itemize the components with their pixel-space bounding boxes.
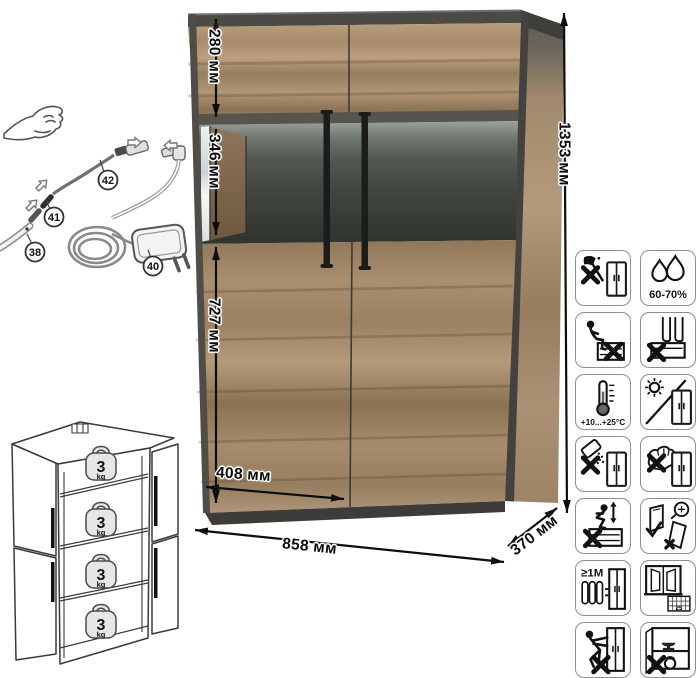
dim-lower-section-height: 727 мм bbox=[206, 298, 222, 353]
cabinet-glass-section bbox=[196, 121, 518, 244]
kettlebell-icon bbox=[665, 657, 675, 669]
part-badge-41: 41 bbox=[48, 212, 60, 224]
icon-no-sharp-tools bbox=[575, 250, 631, 306]
icon-temperature-range: +10...+25°C bbox=[575, 374, 631, 430]
care-icons-grid: 60-70% +10...+25°C bbox=[575, 250, 696, 678]
calendar-label: 25 bbox=[675, 605, 682, 612]
svg-text:kg: kg bbox=[97, 528, 106, 537]
icon-anchor-to-wall bbox=[640, 498, 696, 554]
part-badge-42: 42 bbox=[102, 175, 114, 187]
svg-text:kg: kg bbox=[97, 630, 106, 639]
icon-no-heavy-objects bbox=[640, 622, 696, 678]
icon-no-spilling-liquids bbox=[575, 436, 631, 492]
cable-coil bbox=[69, 227, 134, 267]
open-right-doors bbox=[152, 444, 178, 634]
dim-total-height: 1353 мм bbox=[556, 122, 572, 186]
icon-no-sitting bbox=[575, 312, 631, 368]
icon-no-jumping bbox=[575, 498, 631, 554]
part-badge-40: 40 bbox=[147, 261, 159, 273]
dim-top-section-height: 280 мм bbox=[206, 29, 222, 84]
dc-plug bbox=[112, 146, 185, 218]
icon-keep-1m-from-heat: ≥1М bbox=[575, 560, 631, 616]
svg-text:kg: kg bbox=[97, 580, 106, 589]
temperature-label: +10...+25°C bbox=[581, 417, 626, 427]
hand-icon bbox=[4, 106, 63, 139]
dim-door-width: 408 мм bbox=[216, 465, 272, 484]
icon-humidity-60-70: 60-70% bbox=[640, 250, 696, 306]
product-spec-sheet: 280 мм 346 мм 727 мм 408 мм 858 мм 370 м… bbox=[0, 0, 700, 678]
open-left-doors bbox=[12, 444, 56, 660]
calendar-icon: 25 bbox=[668, 596, 690, 612]
icon-no-standing-on-surfaces bbox=[640, 312, 696, 368]
icon-no-abrasive-cleaning bbox=[640, 436, 696, 492]
led-wiring-diagram: 42 41 38 40 bbox=[0, 88, 200, 288]
svg-text:kg: kg bbox=[97, 472, 106, 481]
part-badge-38: 38 bbox=[29, 247, 41, 259]
icon-ventilate-room: 25 bbox=[640, 560, 696, 616]
led-strip bbox=[0, 226, 30, 248]
icon-avoid-direct-sunlight bbox=[640, 374, 696, 430]
shelf-load-diagram: 3 kg 3 kg 3 kg 3 kg bbox=[2, 416, 188, 678]
dim-glass-section-height: 346 мм bbox=[206, 134, 222, 189]
humidity-label: 60-70% bbox=[649, 289, 687, 301]
icon-no-pushing-dragging bbox=[575, 622, 631, 678]
cabinet-top-section bbox=[188, 23, 521, 125]
min-distance-label: ≥1М bbox=[581, 568, 603, 580]
